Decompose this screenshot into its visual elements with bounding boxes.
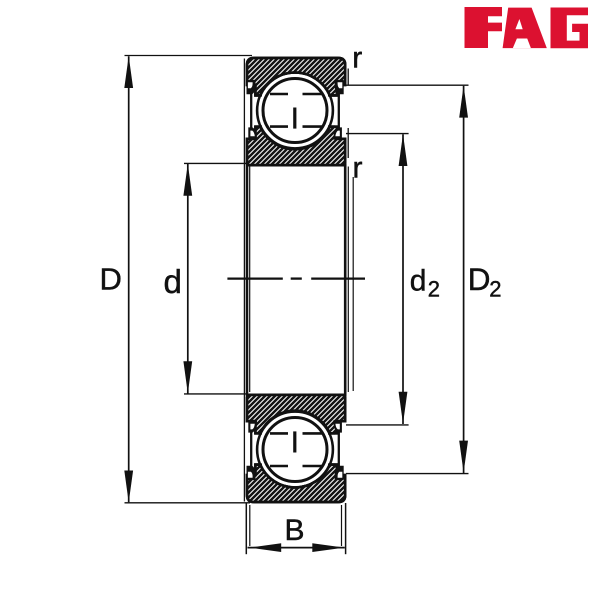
svg-text:2: 2 (489, 277, 501, 302)
svg-text:D: D (468, 261, 491, 297)
svg-text:d: d (164, 263, 182, 300)
svg-text:B: B (285, 514, 305, 547)
svg-text:r: r (353, 151, 363, 184)
svg-text:D: D (100, 262, 122, 297)
svg-text:d: d (410, 265, 427, 298)
svg-text:2: 2 (428, 277, 440, 302)
svg-text:r: r (352, 42, 362, 75)
